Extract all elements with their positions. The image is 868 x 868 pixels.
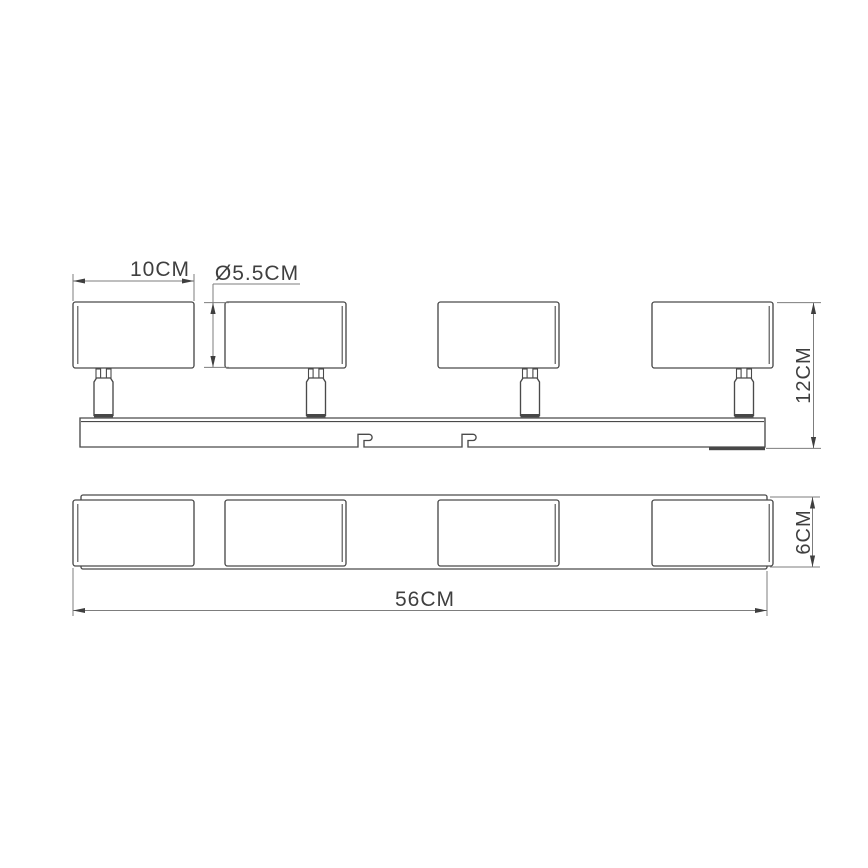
stem-base [735,414,754,417]
track-outline [80,418,765,447]
dimension-overall-height: 12CM [766,303,821,449]
arrowhead-down [210,356,215,367]
stem-fork [319,369,324,378]
dimension-head-width: 10CM [73,258,194,301]
stem-fork [309,369,314,378]
stem-body [94,378,113,416]
spotlight-head-side-2 [225,302,346,368]
arrowhead-down [810,556,815,568]
dimension-label-10cm: 10CM [130,258,190,281]
bottom-view: 6CM 56CM [73,495,820,616]
arrowhead-up [811,303,816,314]
track-end-plate [709,447,765,450]
dimension-base-depth: 6CM [770,497,820,567]
dimension-drawing-page: 10CM Ø5.5CM 12CM [0,0,868,868]
stem-body [521,378,540,416]
spotlight-head-side-3 [438,302,559,368]
stem-base [94,414,113,417]
arrowhead-up [810,497,815,509]
dimension-label-56cm: 56CM [395,588,455,611]
spotlight-head-bottom-3 [438,500,559,566]
stem-fork [96,369,101,378]
spotlight-head-side-4 [652,302,773,368]
stem-fork [523,369,528,378]
side-view: 10CM Ø5.5CM 12CM [73,258,821,450]
dimension-label-6cm: 6CM [793,509,815,554]
spotlight-head-bottom-2 [225,500,346,566]
swivel-stem-3 [521,369,540,417]
stem-fork [737,369,742,378]
swivel-stem-1 [94,369,113,417]
spotlight-head-bottom-1 [73,500,194,566]
stem-base [521,414,540,417]
dimension-base-length: 56CM [73,568,767,616]
arrowhead-left [73,279,85,284]
spotlight-head-side-1 [73,302,194,368]
arrowhead-up [210,303,215,314]
mounting-track [80,418,765,450]
stem-fork [747,369,752,378]
dimension-drawing: 10CM Ø5.5CM 12CM [0,0,868,868]
dimension-label-diameter: Ø5.5CM [215,262,299,285]
dimension-label-12cm: 12CM [793,346,815,403]
stem-base [307,414,326,417]
spotlight-head-bottom-4 [652,500,773,566]
arrowhead-down [811,437,816,448]
stem-fork [533,369,538,378]
stem-fork [106,369,111,378]
swivel-stem-4 [735,369,754,417]
stem-body [307,378,326,416]
arrowhead-right [755,608,767,613]
swivel-stem-2 [307,369,326,417]
arrowhead-left [73,608,85,613]
stem-body [735,378,754,416]
